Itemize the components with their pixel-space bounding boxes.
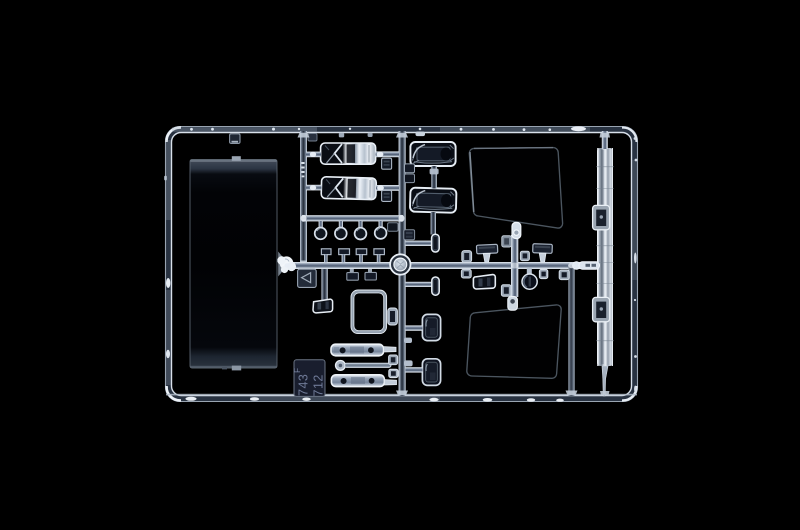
svg-text:743: 743 — [297, 374, 311, 396]
svg-text:712: 712 — [312, 374, 326, 396]
svg-text:F: F — [293, 368, 302, 373]
